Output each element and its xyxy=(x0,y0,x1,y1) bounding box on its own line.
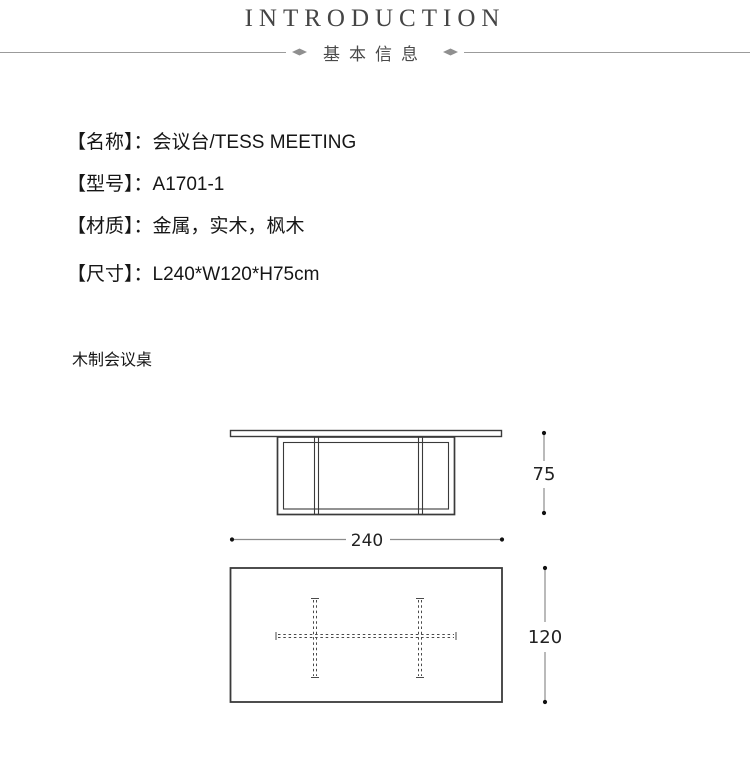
diamond-arrow-icon xyxy=(292,48,307,56)
spec-row-model: 【型号】：A1701-1 xyxy=(67,171,356,199)
diamond-arrow-icon xyxy=(443,48,458,56)
spec-separator: ： xyxy=(134,264,153,285)
table-top-front xyxy=(231,431,502,437)
dimension-height-label: 75 xyxy=(533,464,556,485)
divider-line-left xyxy=(0,52,286,53)
spec-label: 【尺寸】 xyxy=(67,264,134,285)
dimension-depth: 120 xyxy=(528,566,562,704)
dimension-width: 240 xyxy=(230,531,504,551)
table-base-inner xyxy=(284,443,449,510)
dimension-width-label: 240 xyxy=(351,531,383,551)
page-title: INTRODUCTION xyxy=(0,5,750,33)
spec-value: 会议台/TESS MEETING xyxy=(153,132,357,153)
spec-label: 【材质】 xyxy=(67,216,134,237)
spec-value: A1701-1 xyxy=(153,174,225,195)
top-view-drawing xyxy=(231,568,503,702)
spec-value: L240*W120*H75cm xyxy=(153,264,320,285)
spec-row-size: 【尺寸】：L240*W120*H75cm xyxy=(67,261,356,289)
section-title: 基本信息 xyxy=(313,40,437,65)
spec-separator: ： xyxy=(134,174,153,195)
table-top-plan xyxy=(231,568,503,702)
product-introduction-page: INTRODUCTION 基本信息 【名称】：会议台/TESS MEETING … xyxy=(0,0,750,759)
spec-separator: ： xyxy=(134,132,153,153)
spec-row-name: 【名称】：会议台/TESS MEETING xyxy=(67,129,356,157)
dimension-depth-label: 120 xyxy=(528,627,562,648)
technical-drawing: 75 240 xyxy=(0,420,750,720)
spec-list: 【名称】：会议台/TESS MEETING 【型号】：A1701-1 【材质】：… xyxy=(67,129,356,303)
spec-label: 【名称】 xyxy=(67,132,134,153)
product-note: 木制会议桌 xyxy=(72,346,152,370)
dimension-height: 75 xyxy=(533,431,556,515)
spec-label: 【型号】 xyxy=(67,174,134,195)
section-header: 基本信息 xyxy=(0,41,750,63)
spec-separator: ： xyxy=(134,216,153,237)
divider-line-right xyxy=(464,52,750,53)
table-base-outer xyxy=(278,437,455,515)
spec-value: 金属，实木，枫木 xyxy=(153,216,305,237)
spec-row-material: 【材质】：金属，实木，枫木 xyxy=(67,213,356,241)
front-view-drawing xyxy=(231,431,502,515)
